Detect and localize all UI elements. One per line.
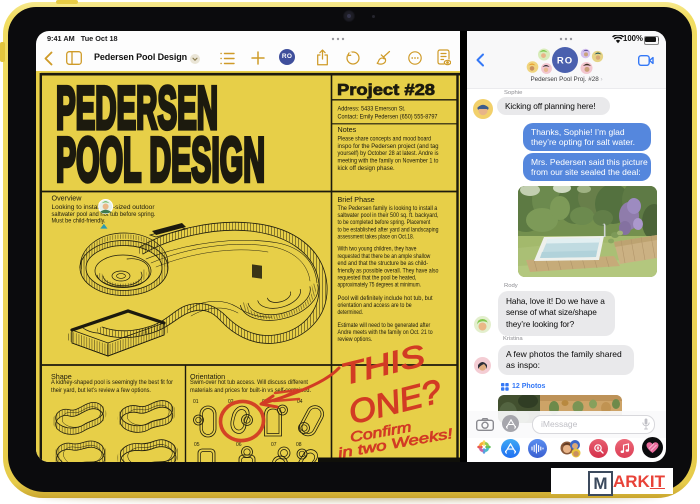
svg-text:determined.: determined. <box>338 309 364 316</box>
svg-text:06: 06 <box>236 442 242 448</box>
svg-text:07: 07 <box>271 442 277 448</box>
svg-text:08: 08 <box>296 442 302 448</box>
svg-text:Pool will definitely include h: Pool will definitely include hot tub, bu… <box>338 295 433 302</box>
svg-text:saltwater pool in their 500 sq: saltwater pool in their 500 sq. ft. back… <box>338 212 439 219</box>
svg-text:to be completed before spring.: to be completed before spring. Placement <box>338 219 431 226</box>
svg-text:Brief Phase: Brief Phase <box>338 195 375 204</box>
svg-text:Contact: Emily Pedersen (650): Contact: Emily Pedersen (650) 555-8797 <box>338 114 438 121</box>
svg-text:Swim-over hot tub access. Will: Swim-over hot tub access. Will discuss d… <box>190 379 308 386</box>
svg-text:inspo for the Pedersen project: inspo for the Pedersen project (and tag <box>338 143 439 150</box>
svg-text:05: 05 <box>194 442 200 448</box>
svg-text:Address: 5433 Emerson St.: Address: 5433 Emerson St. <box>338 106 406 113</box>
svg-text:review options.: review options. <box>338 336 373 343</box>
svg-text:requested that the pool be hea: requested that the pool be heated, <box>338 275 417 282</box>
svg-text:POOL DESIGN: POOL DESIGN <box>56 126 265 195</box>
svg-text:yourself) by October 28 at lat: yourself) by October 28 at latest. Andre… <box>338 150 439 157</box>
svg-text:to be established after yard a: to be established after yard and landsca… <box>338 226 439 233</box>
svg-text:Estimate will need to be gener: Estimate will need to be generated after <box>338 322 431 329</box>
svg-text:friendly as possible overall.: friendly as possible overall. They have … <box>338 267 439 274</box>
svg-text:RO: RO <box>557 56 573 67</box>
svg-text:Please share concepts and mood: Please share concepts and mood board <box>338 136 432 143</box>
svg-text:A kidney-shaped pool is seemin: A kidney-shaped pool is seemingly the be… <box>51 379 173 386</box>
svg-text:assessment takes place on Oct.: assessment takes place on Oct.18. <box>338 234 415 241</box>
svg-text:requested that there be an amp: requested that there be an ample shallow <box>338 253 431 260</box>
svg-text:their yard, but let’s review a: their yard, but let’s review a few optio… <box>51 387 151 394</box>
svg-text:01: 01 <box>193 399 199 405</box>
svg-text:Must be child-friendly.: Must be child-friendly. <box>52 218 106 225</box>
svg-text:The Pedersen family is looking: The Pedersen family is looking to instal… <box>338 205 438 212</box>
svg-text:Overview: Overview <box>52 194 83 203</box>
svg-text:kick off design phase.: kick off design phase. <box>338 165 395 172</box>
svg-text:end and that the structure be: end and that the structure be as child- <box>338 260 429 267</box>
svg-text:Notes: Notes <box>338 125 357 134</box>
svg-text:Project #28: Project #28 <box>337 82 435 99</box>
svg-text:meeting with the family on Nov: meeting with the family on November 1 to <box>338 158 439 165</box>
svg-text:approximately 75 degrees at mi: approximately 75 degrees at minimum. <box>338 282 422 289</box>
svg-text:With two young children, they: With two young children, they have <box>338 246 417 253</box>
